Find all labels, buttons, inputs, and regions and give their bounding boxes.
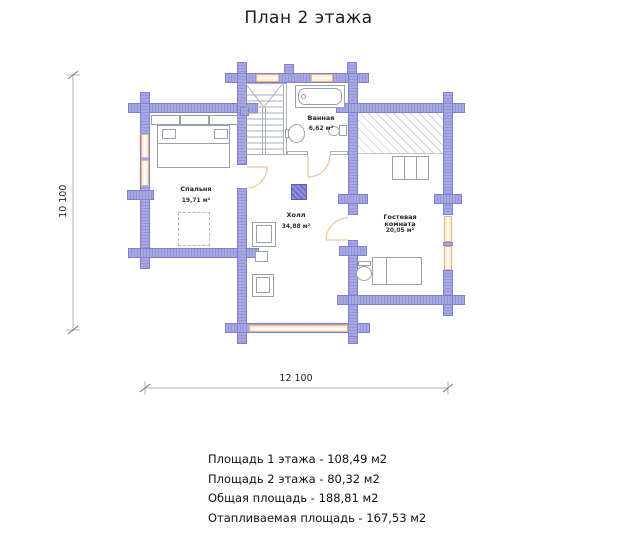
wall-log-end (357, 323, 370, 333)
wall (237, 188, 247, 337)
wall (348, 295, 453, 305)
wall (140, 103, 247, 113)
pillow (214, 129, 228, 139)
armchair-seat (256, 277, 270, 293)
wall-log-end (452, 103, 465, 113)
summary-floor2-area: Площадь 2 этажа - 80,32 м2 (208, 472, 426, 492)
room-label-hall: Холл (266, 212, 326, 219)
wall-log-end (237, 332, 247, 344)
wall-log-end (240, 107, 249, 116)
blanket-line (157, 143, 230, 144)
window (444, 246, 452, 270)
door-bedroom (247, 167, 267, 188)
dimension-width: 12 100 (256, 374, 336, 384)
summary-floor1-area: Площадь 1 этажа - 108,49 м2 (208, 452, 426, 472)
roof-slope-hatch (358, 113, 443, 154)
page-title: План 2 этажа (0, 8, 617, 28)
bathtub-drain (301, 94, 306, 99)
rug (178, 212, 210, 246)
coffee-table (255, 251, 268, 262)
chimney-flue (291, 184, 307, 200)
wall (237, 73, 247, 165)
area-summary: Площадь 1 этажа - 108,49 м2 Площадь 2 эт… (208, 452, 426, 530)
wall-log-end (140, 257, 150, 269)
partition-wall (330, 151, 348, 155)
window (444, 216, 452, 242)
wardrobe-divider (404, 156, 405, 180)
summary-total-area: Общая площадь - 188,81 м2 (208, 491, 426, 511)
wardrobe-divider (416, 156, 417, 180)
dimension-height: 10 100 (59, 171, 69, 231)
staircase (245, 83, 284, 155)
wall (348, 103, 453, 113)
room-area-guest-room: 20,05 м² (368, 228, 432, 235)
partition-wall (287, 151, 308, 155)
office-chair-seat (356, 266, 372, 281)
floor-plan-page: План 2 этажа (0, 0, 617, 548)
window (249, 325, 348, 332)
headboard-shelf (180, 115, 209, 125)
room-label-bedroom: Спальня (166, 186, 226, 193)
wall-log-end (452, 295, 465, 305)
room-area-bathroom: 6,62 м² (299, 126, 343, 133)
desk-divider (386, 257, 387, 285)
room-area-bedroom: 19,71 м² (166, 198, 226, 205)
headboard-shelf (209, 115, 238, 125)
wall (140, 248, 245, 258)
wall-log-end (339, 246, 367, 256)
window (256, 74, 279, 82)
door-bathroom (308, 155, 330, 177)
window (141, 160, 149, 186)
door-guest-room (326, 218, 348, 240)
window (311, 74, 333, 82)
wall-log-end (338, 194, 368, 204)
summary-heated-area: Отапливаемая площадь - 167,53 м2 (208, 511, 426, 531)
wall-log-end (434, 194, 462, 204)
wall-log-end (284, 64, 294, 74)
pillow (162, 129, 176, 139)
wall-log-end (127, 190, 154, 200)
headboard-shelf (151, 115, 180, 125)
partition-wall (283, 83, 287, 155)
wardrobe (392, 156, 429, 180)
wall (237, 73, 357, 83)
desk (372, 257, 422, 285)
room-area-hall: 34,88 м² (266, 224, 326, 231)
sink-tap (285, 129, 289, 138)
wall-log-end (443, 304, 453, 316)
room-label-bathroom: Ванная (299, 115, 343, 122)
window (141, 134, 149, 158)
